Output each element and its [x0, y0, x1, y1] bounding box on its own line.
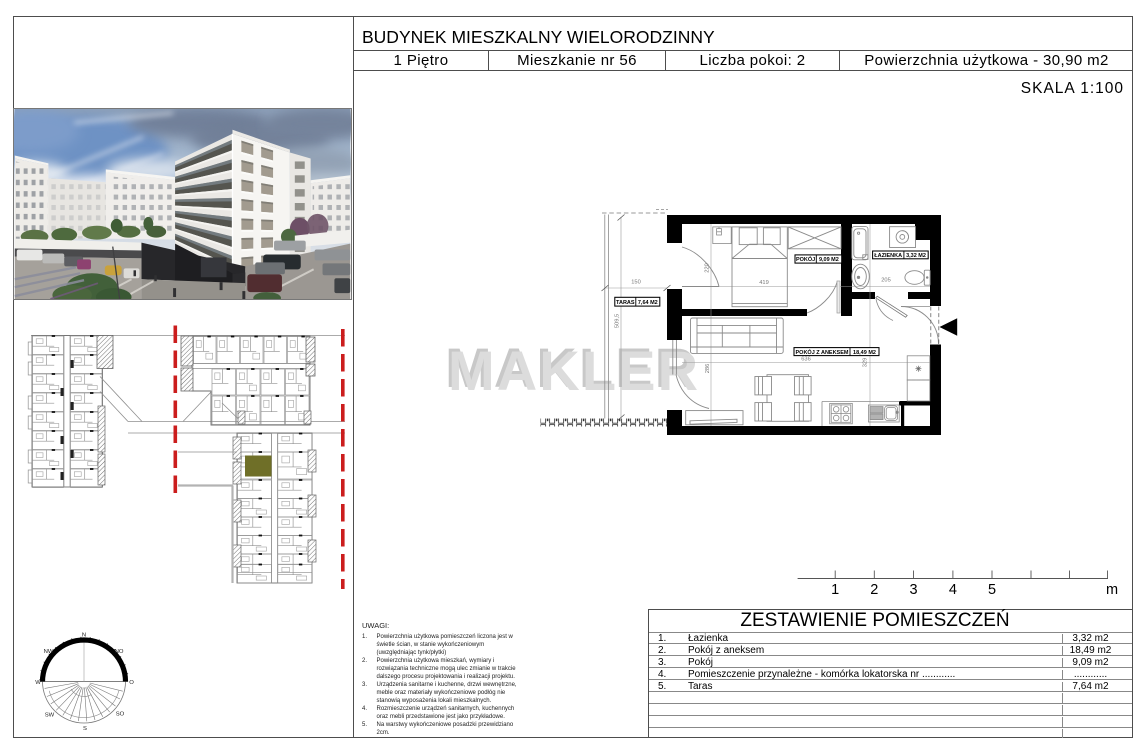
- svg-text:1: 1: [831, 582, 839, 598]
- svg-text:POKÓJ Z ANEKSEM: POKÓJ Z ANEKSEM: [796, 348, 849, 356]
- svg-text:SW: SW: [45, 713, 55, 719]
- svg-text:S: S: [83, 726, 87, 732]
- svg-text:NO: NO: [115, 649, 124, 655]
- svg-text:POKÓJ: POKÓJ: [796, 255, 815, 263]
- svg-text:9,09 M2: 9,09 M2: [819, 257, 839, 263]
- svg-text:636: 636: [801, 357, 811, 363]
- svg-text:3: 3: [909, 582, 917, 598]
- svg-text:3,32 M2: 3,32 M2: [906, 253, 926, 259]
- svg-text:m: m: [1106, 582, 1118, 598]
- svg-text:NW: NW: [44, 649, 54, 655]
- svg-text:N: N: [82, 633, 86, 639]
- svg-text:W: W: [35, 680, 41, 686]
- svg-text:2: 2: [870, 582, 878, 598]
- svg-text:ŁAZIENKA: ŁAZIENKA: [874, 253, 902, 259]
- svg-text:18,49 M2: 18,49 M2: [853, 350, 876, 356]
- svg-text:286: 286: [705, 364, 711, 374]
- svg-text:150: 150: [631, 280, 641, 286]
- svg-text:O: O: [129, 680, 134, 686]
- svg-text:TARAS: TARAS: [616, 300, 635, 306]
- svg-text:329: 329: [863, 358, 869, 368]
- svg-text:5: 5: [988, 582, 996, 598]
- svg-text:205: 205: [881, 278, 891, 284]
- svg-text:4: 4: [949, 582, 957, 598]
- svg-text:419: 419: [759, 280, 769, 286]
- svg-text:7,64 M2: 7,64 M2: [638, 300, 658, 306]
- svg-text:SO: SO: [116, 712, 125, 718]
- svg-text:509,5: 509,5: [615, 314, 621, 328]
